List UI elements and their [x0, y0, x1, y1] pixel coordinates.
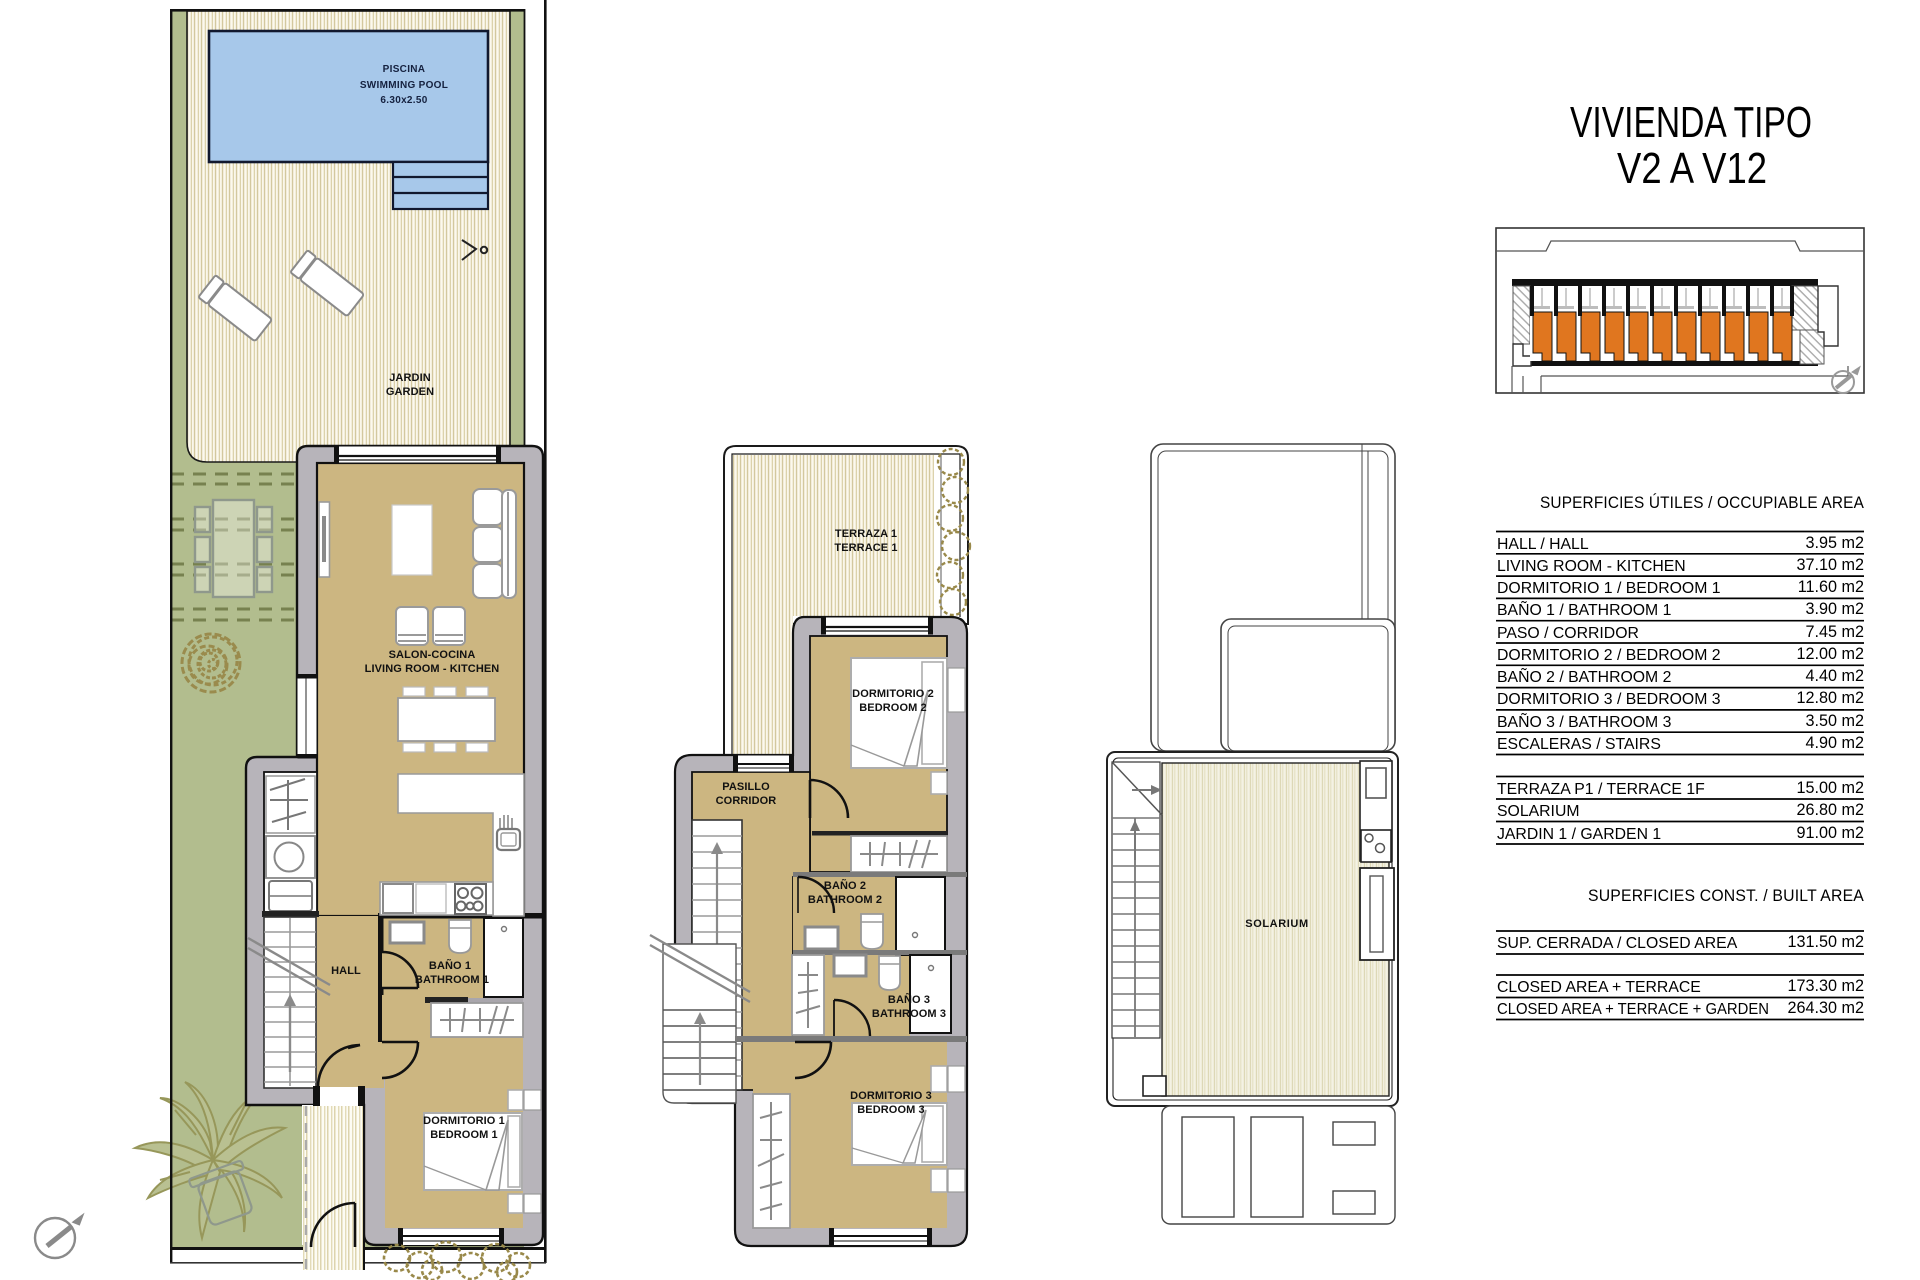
svg-text:BAÑO 2: BAÑO 2 [824, 879, 866, 892]
svg-text:37.10 m2: 37.10 m2 [1797, 556, 1865, 574]
svg-text:BEDROOM 1: BEDROOM 1 [430, 1129, 498, 1141]
svg-text:TERRAZA P1 / TERRACE 1F: TERRAZA P1 / TERRACE 1F [1497, 781, 1705, 798]
svg-text:SUP. CERRADA / CLOSED AREA: SUP. CERRADA / CLOSED AREA [1497, 935, 1738, 952]
svg-text:BAÑO 1 / BATHROOM 1: BAÑO 1 / BATHROOM 1 [1497, 599, 1672, 619]
svg-text:4.90 m2: 4.90 m2 [1806, 734, 1865, 752]
svg-text:PASILLO: PASILLO [722, 781, 770, 793]
svg-text:DORMITORIO 2: DORMITORIO 2 [852, 688, 934, 700]
svg-text:173.30 m2: 173.30 m2 [1788, 977, 1865, 995]
svg-text:7.45 m2: 7.45 m2 [1806, 623, 1865, 641]
svg-text:HALL / HALL: HALL / HALL [1497, 536, 1589, 553]
svg-text:VIVIENDA TIPO: VIVIENDA TIPO [1570, 98, 1812, 147]
svg-text:LIVING ROOM - KITCHEN: LIVING ROOM - KITCHEN [365, 663, 500, 675]
svg-text:BAÑO 3: BAÑO 3 [888, 993, 930, 1006]
svg-text:CORRIDOR: CORRIDOR [716, 795, 777, 807]
svg-text:DORMITORIO 1 / BEDROOM 1: DORMITORIO 1 / BEDROOM 1 [1497, 580, 1721, 597]
svg-text:HALL: HALL [331, 965, 361, 977]
svg-text:SUPERFICIES CONST. / BUILT AR: SUPERFICIES CONST. / BUILT AREA [1588, 886, 1864, 905]
svg-text:PISCINA: PISCINA [383, 64, 426, 75]
svg-text:3.95 m2: 3.95 m2 [1806, 534, 1865, 552]
svg-text:3.50 m2: 3.50 m2 [1806, 712, 1865, 730]
svg-text:BEDROOM 2: BEDROOM 2 [859, 702, 927, 714]
svg-text:15.00 m2: 15.00 m2 [1797, 779, 1865, 797]
svg-text:PASO / CORRIDOR: PASO / CORRIDOR [1497, 625, 1639, 642]
svg-text:CLOSED AREA + TERRACE: CLOSED AREA + TERRACE [1497, 979, 1701, 996]
svg-text:BATHROOM 3: BATHROOM 3 [872, 1008, 946, 1020]
svg-text:BATHROOM 2: BATHROOM 2 [808, 894, 882, 906]
svg-text:6.30x2.50: 6.30x2.50 [380, 95, 427, 106]
svg-text:BAÑO 2 / BATHROOM 2: BAÑO 2 / BATHROOM 2 [1497, 666, 1671, 686]
svg-text:BAÑO 3 / BATHROOM 3: BAÑO 3 / BATHROOM 3 [1497, 711, 1672, 731]
svg-text:TERRAZA 1: TERRAZA 1 [835, 528, 897, 540]
svg-text:JARDIN: JARDIN [389, 372, 431, 384]
svg-text:CLOSED AREA + TERRACE + GARDEN: CLOSED AREA + TERRACE + GARDEN [1497, 1001, 1769, 1018]
svg-text:91.00 m2: 91.00 m2 [1797, 824, 1865, 842]
svg-text:DORMITORIO 2 / BEDROOM 2: DORMITORIO 2 / BEDROOM 2 [1497, 647, 1721, 664]
svg-text:DORMITORIO 3: DORMITORIO 3 [850, 1090, 932, 1102]
svg-text:TERRACE 1: TERRACE 1 [834, 542, 897, 554]
svg-text:DORMITORIO 3 / BEDROOM 3: DORMITORIO 3 / BEDROOM 3 [1497, 691, 1721, 708]
svg-text:12.00 m2: 12.00 m2 [1797, 645, 1865, 663]
svg-text:JARDIN 1 / GARDEN 1: JARDIN 1 / GARDEN 1 [1497, 826, 1661, 843]
svg-text:264.30 m2: 264.30 m2 [1788, 999, 1865, 1017]
svg-text:DORMITORIO 1: DORMITORIO 1 [423, 1115, 505, 1127]
svg-text:SOLARIUM: SOLARIUM [1497, 803, 1580, 820]
svg-text:SUPERFICIES ÚTILES / OCCUPIABL: SUPERFICIES ÚTILES / OCCUPIABLE AREA [1540, 493, 1864, 512]
svg-text:11.60 m2: 11.60 m2 [1798, 578, 1864, 596]
svg-text:4.40 m2: 4.40 m2 [1806, 667, 1865, 685]
svg-text:BAÑO 1: BAÑO 1 [429, 959, 471, 972]
svg-text:SWIMMING POOL: SWIMMING POOL [360, 80, 448, 91]
svg-text:LIVING ROOM - KITCHEN: LIVING ROOM - KITCHEN [1497, 558, 1686, 575]
svg-text:26.80 m2: 26.80 m2 [1797, 801, 1865, 819]
svg-text:BATHROOM 1: BATHROOM 1 [415, 974, 489, 986]
svg-text:GARDEN: GARDEN [386, 386, 434, 398]
svg-text:SOLARIUM: SOLARIUM [1245, 918, 1308, 930]
svg-text:12.80 m2: 12.80 m2 [1797, 689, 1865, 707]
svg-text:SALON-COCINA: SALON-COCINA [389, 649, 476, 661]
svg-text:BEDROOM 3: BEDROOM 3 [857, 1104, 925, 1116]
svg-text:131.50 m2: 131.50 m2 [1788, 933, 1865, 951]
svg-text:V2 A V12: V2 A V12 [1617, 144, 1767, 193]
svg-text:ESCALERAS / STAIRS: ESCALERAS / STAIRS [1497, 736, 1661, 753]
svg-text:3.90 m2: 3.90 m2 [1806, 600, 1865, 618]
